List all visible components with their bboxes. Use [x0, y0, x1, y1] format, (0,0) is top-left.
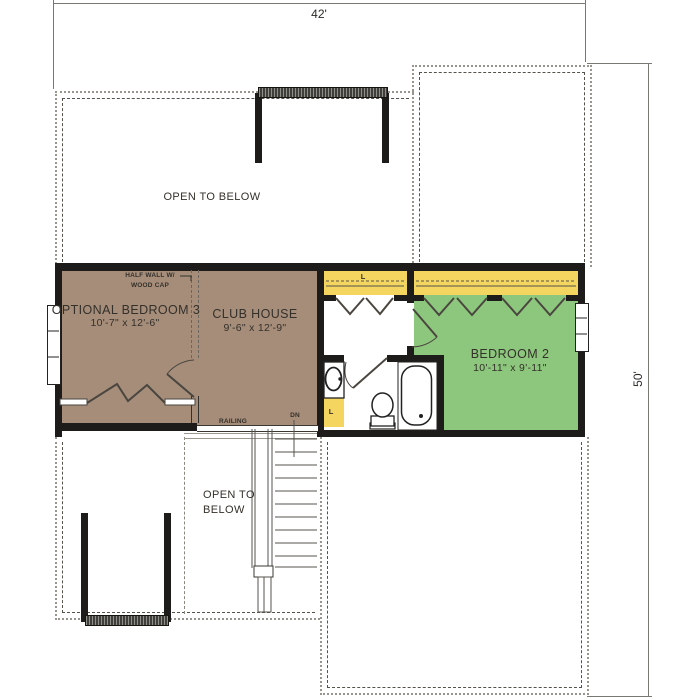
dimension-line-top — [53, 3, 585, 4]
wall-bottom-bedroom3 — [55, 423, 197, 431]
bedroom3-clubhouse-floor — [58, 266, 320, 426]
open-to-below-lower-label: OPEN TO BELOW — [203, 488, 261, 518]
deck-rail-bottom — [85, 615, 169, 626]
roof-outline-lower-right — [320, 437, 589, 695]
closet-jamb-bedroom2-mid — [487, 295, 502, 301]
dimension-tick-right-top — [645, 63, 652, 64]
stairwell-dashed-boundary — [184, 437, 185, 614]
bedroom2-name: BEDROOM 2 — [430, 347, 590, 361]
deck-post-bottom-right — [164, 513, 171, 622]
bedroom2-closet-fill — [414, 271, 578, 295]
closet-jamb-bedroom2-right — [566, 295, 578, 301]
clubhouse-size: 9'-6" x 12'-9" — [175, 322, 335, 334]
floor-plan: 42' 50' — [0, 0, 700, 700]
witness-line-left — [53, 3, 54, 89]
door-bathroom — [345, 358, 387, 388]
roof-outline-upper-left — [55, 91, 414, 267]
bedroom2-size: 10'-11" x 9'-11" — [430, 362, 590, 374]
stairwell-edge-line — [184, 433, 317, 439]
closet-jamb-hall-left — [324, 295, 336, 301]
height-dimension-label: 50' — [631, 363, 645, 395]
witness-line-bottom-right — [587, 696, 650, 697]
clubhouse-name: CLUB HOUSE — [175, 307, 335, 321]
roof-outline-lower-left — [55, 437, 320, 620]
closet-jamb-bedroom2-left — [414, 295, 424, 301]
wall-clubhouse-hall — [317, 263, 324, 437]
width-dimension-label: 42' — [299, 7, 339, 21]
sink-vanity — [324, 362, 344, 398]
deck-post-top-left — [255, 93, 262, 163]
wall-bottom-right — [317, 430, 585, 437]
half-wall-note: HALF WALL W/ WOOD CAP — [120, 271, 180, 291]
window-bedroom2-right — [575, 303, 589, 352]
roof-outline-upper-right — [412, 65, 592, 267]
dimension-line-right — [648, 63, 649, 697]
toilet — [370, 393, 395, 429]
open-to-below-upper-label: OPEN TO BELOW — [132, 191, 292, 203]
deck-post-top-right — [382, 93, 389, 163]
dn-label: DN — [287, 411, 303, 421]
dimension-tick-right-bottom — [645, 696, 652, 697]
wall-bath-top-left — [324, 355, 344, 362]
closet-jamb-hall-right — [394, 295, 407, 301]
linen-closet-label-hall: L — [357, 272, 369, 281]
linen-closet-label-bath: L — [325, 407, 337, 416]
railing-label: RAILING — [203, 417, 263, 427]
half-wall-lower-stub — [191, 396, 199, 423]
bifold-doors-hall-closet — [336, 298, 393, 314]
witness-line-right — [585, 3, 586, 62]
deck-rail-top — [258, 87, 388, 98]
wall-hall-bedroom2-upper — [407, 263, 414, 303]
witness-line-top-right — [587, 63, 648, 64]
deck-post-bottom-left — [81, 513, 88, 622]
